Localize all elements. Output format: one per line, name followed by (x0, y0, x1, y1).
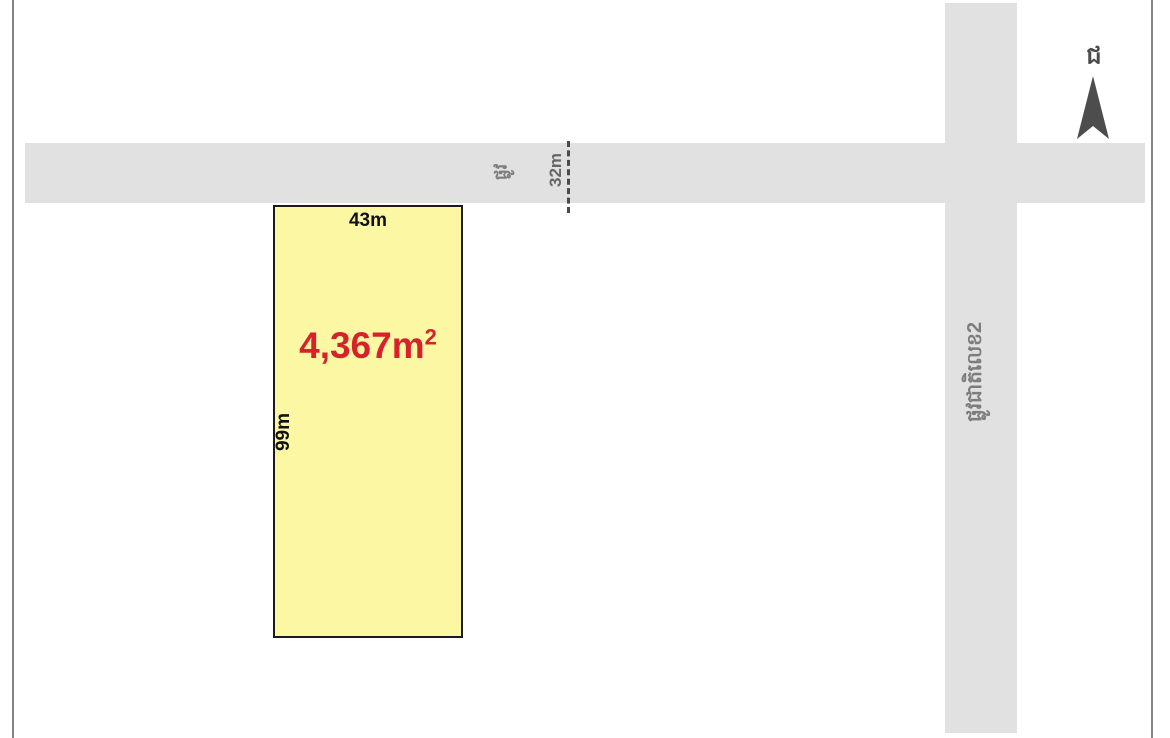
page-frame-left-edge (12, 0, 14, 738)
horizontal-road-name-label: ផ្លូវ (491, 164, 516, 180)
plot-area-value: 4,367m (299, 325, 425, 366)
page-frame-right-edge (1151, 0, 1153, 738)
horizontal-road-width-label: 32m (546, 153, 566, 187)
land-plot-map: ផ្លូវ 32m ផ្លូវជាតិលេខ2 43m 4,367m2 99m … (0, 0, 1170, 738)
vertical-road-name-label: ផ្លូវជាតិលេខ2 (961, 322, 991, 422)
land-plot-parcel: 43m 4,367m2 (273, 205, 463, 638)
plot-width-label: 43m (275, 210, 461, 232)
north-arrow-icon (1077, 76, 1109, 139)
plot-area-label: 4,367m2 (275, 325, 461, 367)
road-width-dashed-line (567, 141, 570, 213)
plot-height-label: 99m (273, 413, 295, 451)
plot-area-superscript: 2 (425, 325, 437, 350)
north-letter-label: ជ (1086, 41, 1101, 76)
